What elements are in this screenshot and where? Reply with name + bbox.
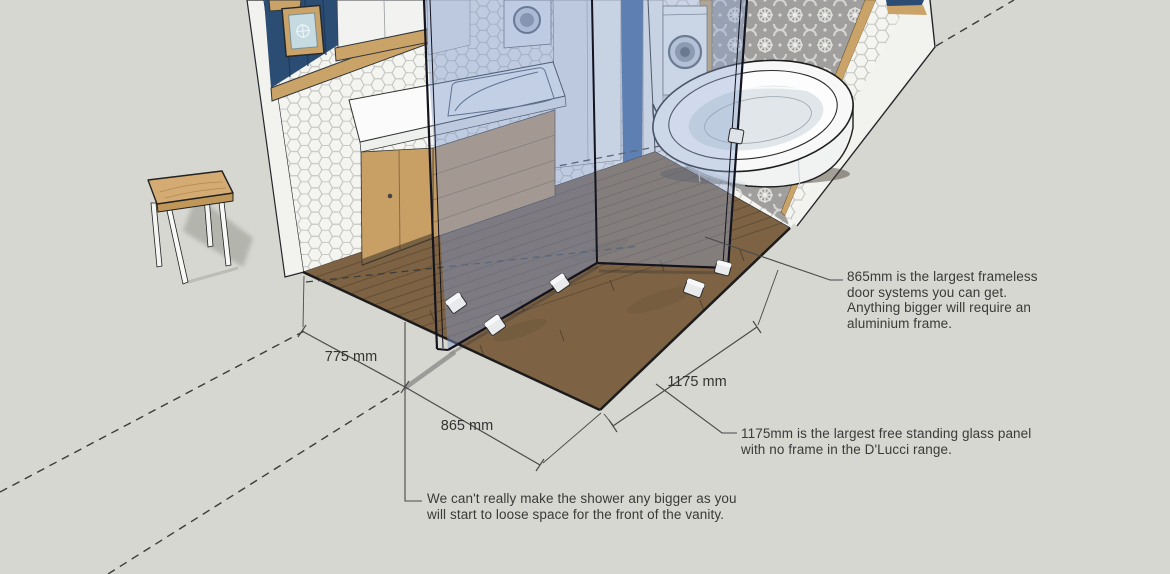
dimension-label-865: 865 mm [441,418,493,434]
note-shower-size: We can't really make the shower any bigg… [427,491,737,522]
sketchup-viewport[interactable]: 775 mm 865 mm 1175 mm 865mm is the large… [0,0,1170,574]
vanity-handle [388,194,393,199]
dimension-label-775: 775 mm [325,349,377,365]
note-free-standing-panel: 1175mm is the largest free standing glas… [741,426,1031,457]
dimension-label-1175: 1175 mm [667,374,726,390]
right-wall-top-trim [887,5,927,15]
glass-panel-right [592,0,747,268]
picture-frame [282,5,324,56]
note-frameless-door: 865mm is the largest frameless door syst… [847,269,1038,331]
